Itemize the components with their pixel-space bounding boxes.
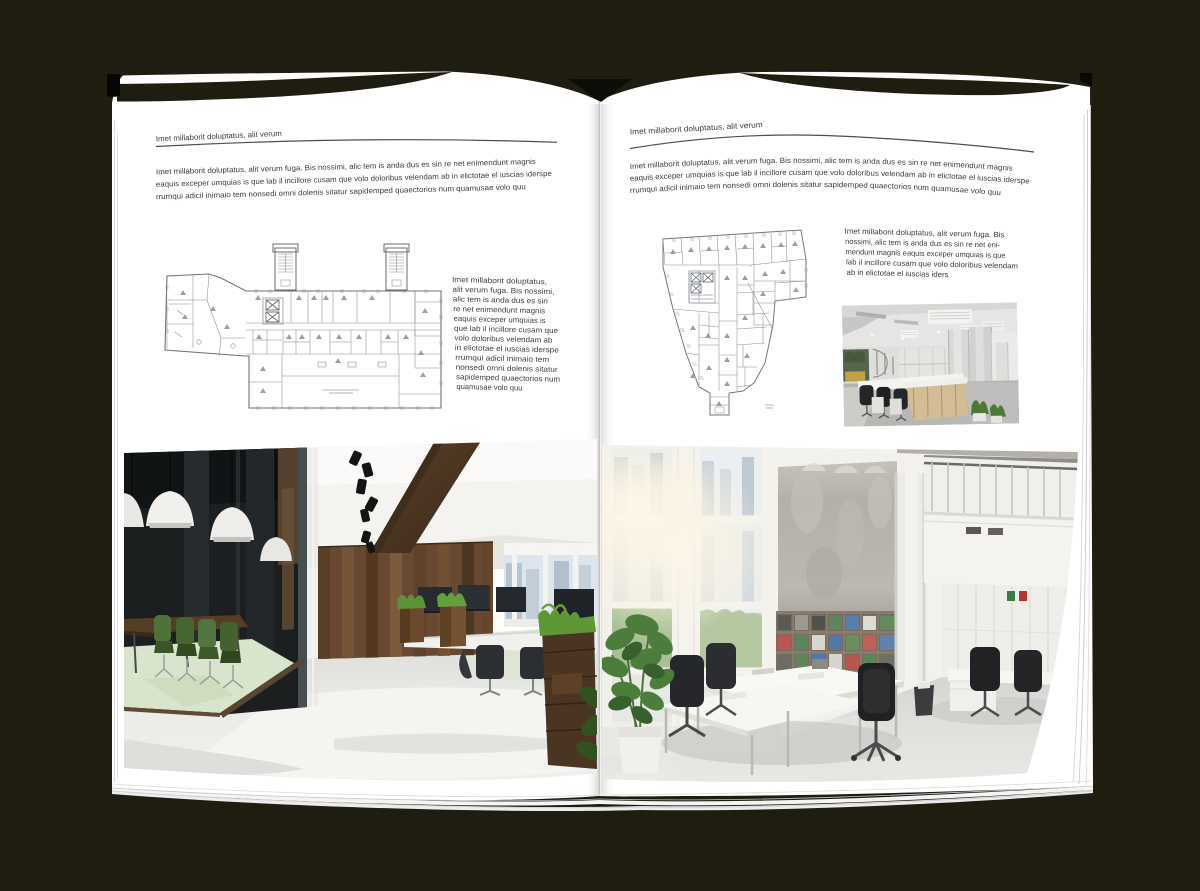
svg-text:volo doloribus velendam ab: volo doloribus velendam ab	[454, 333, 552, 344]
svg-text:rrumqui adicil inimaio tem: rrumqui adicil inimaio tem	[455, 353, 549, 364]
svg-text:sapidemped quaectorios num: sapidemped quaectorios num	[456, 372, 560, 383]
svg-text:alic tem is anda dus es sin: alic tem is anda dus es sin	[453, 294, 548, 305]
svg-text:rrumqui adicil inimaio tem non: rrumqui adicil inimaio tem nonsedi omni …	[630, 180, 1002, 197]
svg-text:nossimi, alic tem is anda dus: nossimi, alic tem is anda dus es sin re …	[845, 237, 1001, 250]
svg-text:nonsedi omni dolenis sitatur: nonsedi omni dolenis sitatur	[456, 363, 559, 374]
svg-text:alit verum fuga. Bis nossimi,: alit verum fuga. Bis nossimi,	[452, 285, 554, 296]
svg-text:in elictotae el iuscias idersp: in elictotae el iuscias iderspe	[455, 343, 559, 354]
svg-text:Imet millaborit doluptatus, al: Imet millaborit doluptatus, alit verum	[156, 129, 282, 144]
svg-text:que lab il incillore cusam que: que lab il incillore cusam que	[454, 324, 558, 335]
svg-text:quamusae volo quu: quamusae volo quu	[456, 382, 522, 393]
svg-text:ab in elictotae el iuscias ide: ab in elictotae el iuscias iders	[846, 268, 948, 279]
svg-text:Imet millaborit doluptatus,: Imet millaborit doluptatus,	[452, 275, 547, 286]
svg-text:Imet millaborit doluptatus, al: Imet millaborit doluptatus, alit verum	[630, 120, 763, 136]
svg-text:eaquis exceper umquias is: eaquis exceper umquias is	[454, 314, 546, 325]
svg-text:re net enimendunt magnis: re net enimendunt magnis	[453, 304, 545, 315]
